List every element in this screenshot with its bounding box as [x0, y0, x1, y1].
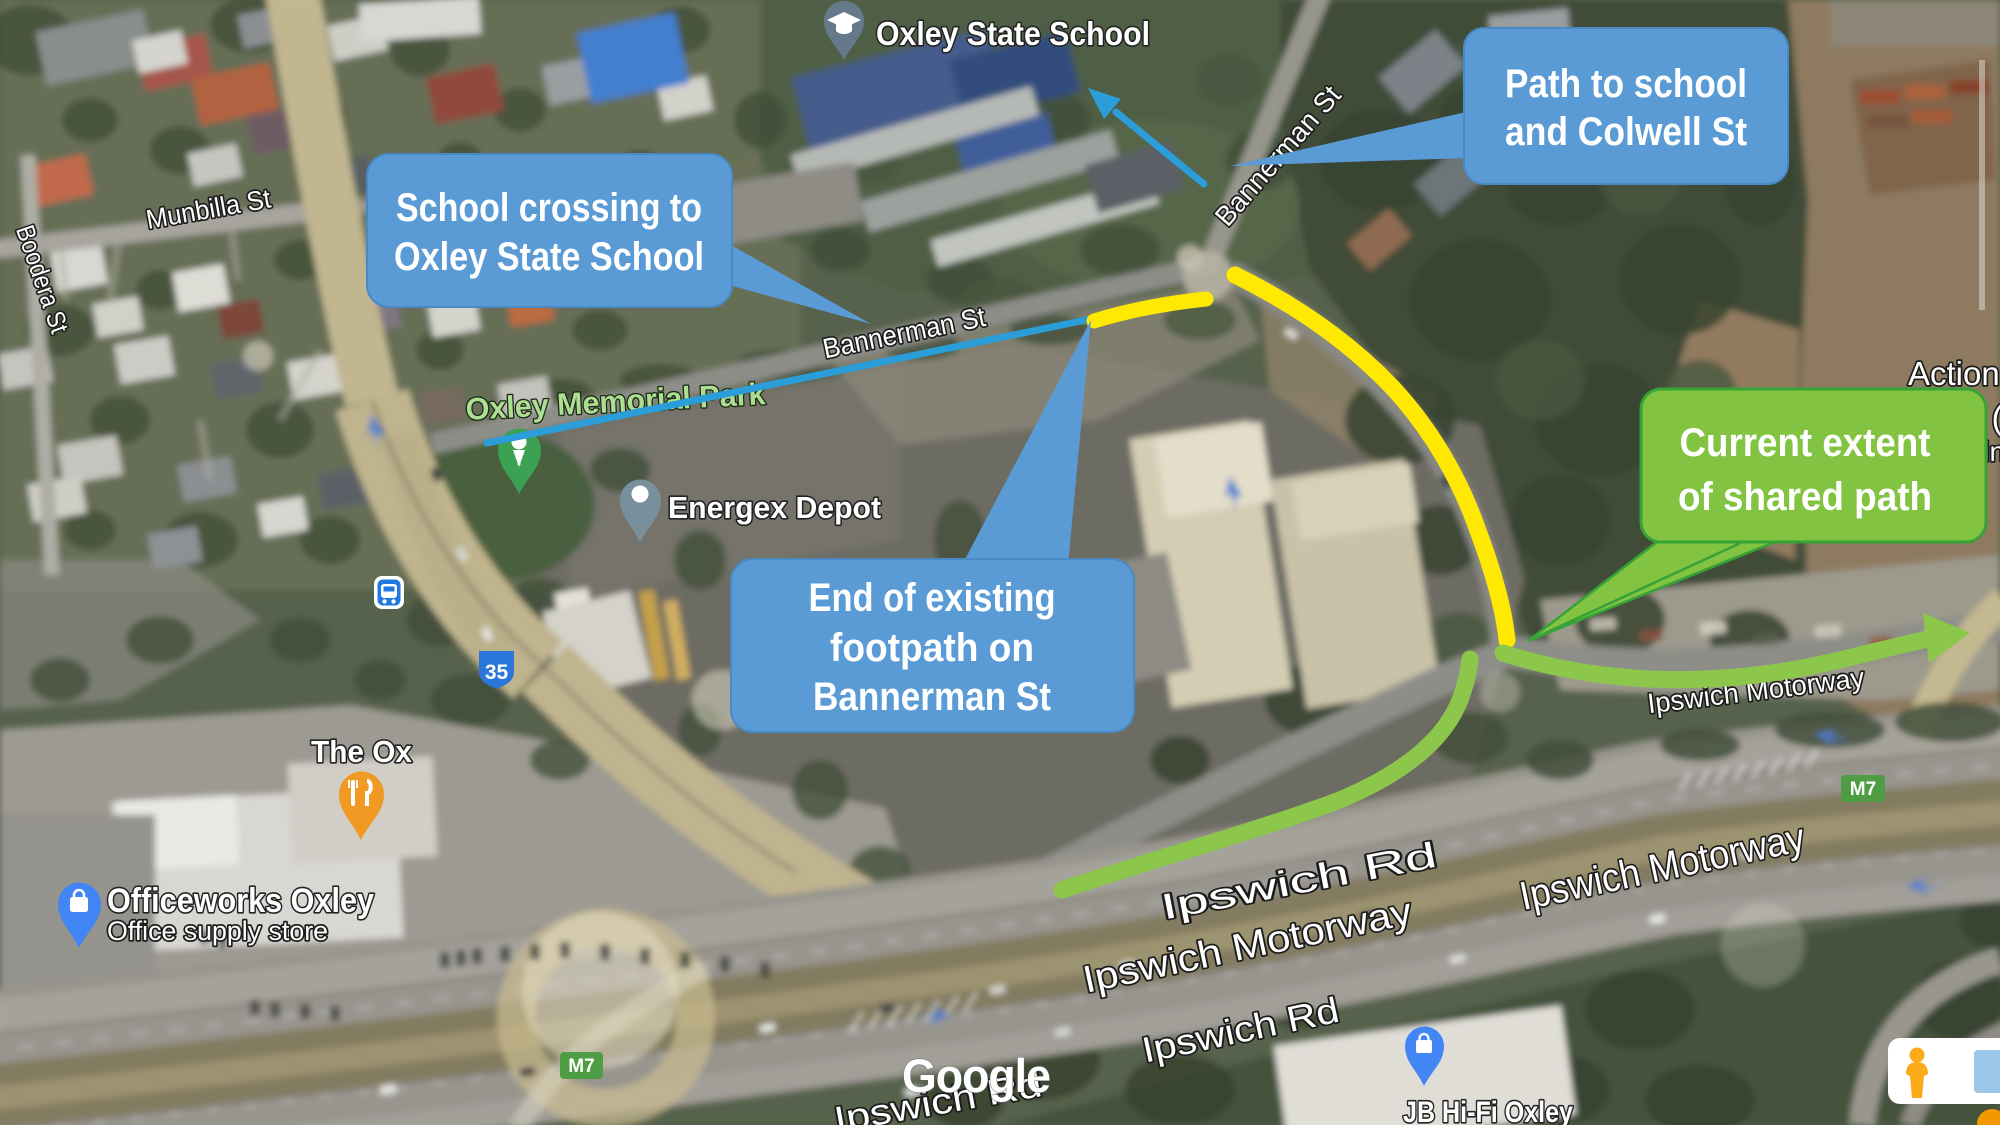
- svg-text:Google: Google: [902, 1049, 1050, 1102]
- svg-text:End of existing: End of existing: [809, 576, 1056, 620]
- svg-text:Bannerman St: Bannerman St: [813, 675, 1051, 719]
- svg-text:M7: M7: [568, 1056, 594, 1077]
- svg-text:Energex Depot: Energex Depot: [668, 490, 881, 525]
- svg-text:Oxley State School: Oxley State School: [876, 15, 1150, 52]
- svg-text:M7: M7: [1850, 779, 1876, 800]
- svg-text:Path to school: Path to school: [1505, 62, 1747, 106]
- svg-text:35: 35: [485, 661, 509, 684]
- svg-text:of shared path: of shared path: [1678, 475, 1932, 519]
- svg-text:footpath on: footpath on: [830, 626, 1034, 670]
- svg-text:Office supply store: Office supply store: [107, 916, 328, 946]
- svg-text:The Ox: The Ox: [311, 734, 413, 769]
- svg-text:Officeworks Oxley: Officeworks Oxley: [107, 882, 374, 920]
- svg-text:and Colwell St: and Colwell St: [1505, 110, 1747, 154]
- svg-text:JB Hi-Fi Oxley: JB Hi-Fi Oxley: [1403, 1096, 1573, 1125]
- svg-text:Oxley State School: Oxley State School: [394, 235, 704, 279]
- svg-text:Action: Action: [1908, 355, 2000, 392]
- svg-text:Current extent: Current extent: [1680, 421, 1931, 465]
- svg-text:School crossing to: School crossing to: [396, 186, 702, 230]
